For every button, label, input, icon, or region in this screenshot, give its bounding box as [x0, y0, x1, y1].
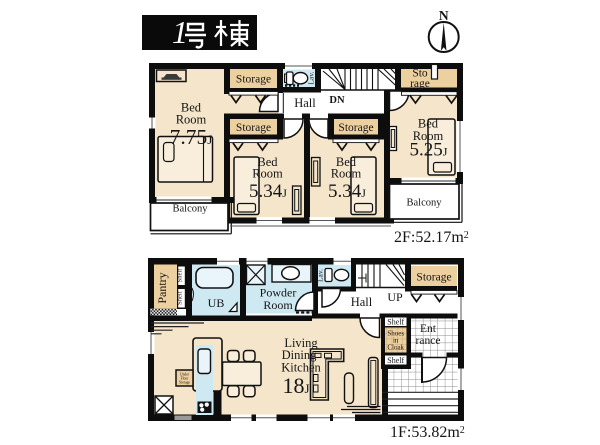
svg-text:Storage: Storage	[236, 122, 271, 134]
svg-text:Shelf: Shelf	[177, 268, 184, 283]
svg-text:Pantry: Pantry	[155, 272, 169, 303]
svg-text:Ent: Ent	[420, 323, 437, 335]
svg-text:Lav.: Lav.	[316, 269, 325, 282]
svg-text:Room: Room	[331, 167, 362, 181]
svg-text:Room: Room	[263, 298, 293, 312]
svg-text:N: N	[439, 8, 449, 23]
svg-text:Storage: Storage	[338, 122, 373, 134]
svg-text:Shelf: Shelf	[177, 290, 184, 305]
svg-text:1: 1	[172, 14, 188, 50]
svg-text:5.34J: 5.34J	[249, 181, 287, 202]
svg-text:Hall: Hall	[351, 295, 373, 309]
svg-text:7.75J: 7.75J	[170, 125, 213, 149]
svg-text:Balcony: Balcony	[407, 198, 443, 209]
svg-text:Cloak: Cloak	[387, 344, 404, 352]
svg-text:Shelf: Shelf	[387, 318, 404, 327]
svg-text:rage: rage	[410, 78, 430, 90]
svg-text:5.34J: 5.34J	[328, 181, 366, 202]
svg-text:Lav.: Lav.	[307, 71, 316, 84]
svg-text:Balcony: Balcony	[173, 204, 209, 215]
svg-text:5.25J: 5.25J	[410, 140, 448, 161]
svg-text:1F:53.82m2: 1F:53.82m2	[390, 424, 465, 441]
svg-text:DN: DN	[329, 95, 345, 106]
svg-text:rance: rance	[416, 335, 441, 347]
svg-text:Storage: Storage	[416, 272, 451, 284]
svg-text:Hall: Hall	[294, 96, 316, 110]
svg-text:UP: UP	[387, 290, 403, 304]
svg-text:Storage: Storage	[179, 381, 190, 385]
svg-text:2F:52.17m2: 2F:52.17m2	[394, 229, 469, 246]
svg-text:Storage: Storage	[236, 74, 271, 86]
svg-text:UB: UB	[208, 296, 225, 310]
svg-text:Room: Room	[252, 167, 283, 181]
svg-text:Shelf: Shelf	[387, 356, 404, 365]
